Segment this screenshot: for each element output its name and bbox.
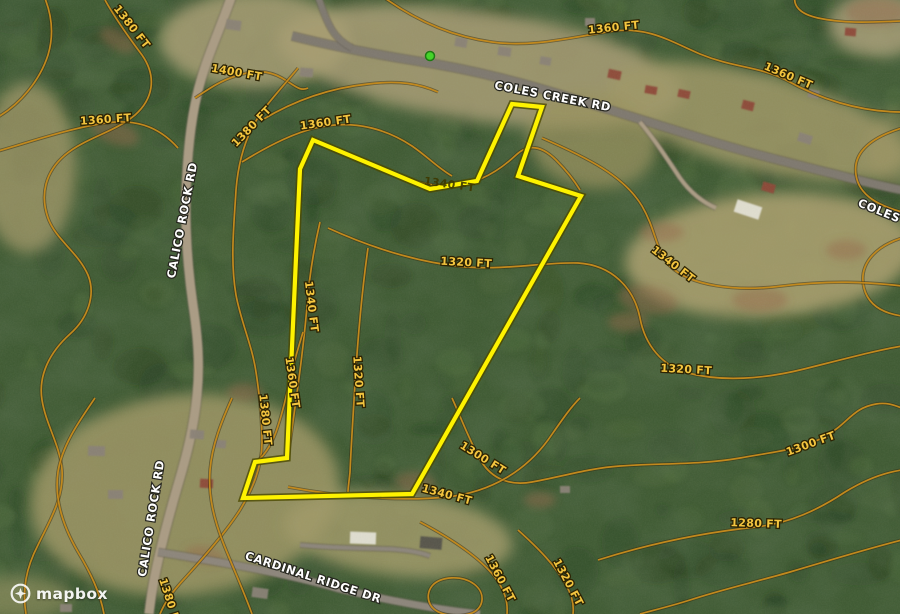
elevation-label: 1280 FT — [730, 516, 782, 531]
mapbox-wordmark: mapbox — [36, 585, 108, 603]
elevation-label: 1320 FT — [660, 362, 712, 378]
green-dot-marker[interactable] — [426, 52, 435, 61]
marker-layer — [426, 52, 435, 61]
mapbox-logo[interactable]: mapbox — [10, 583, 108, 604]
satellite-map: 1380 FT1400 FT1360 FT1380 FT1360 FT1360 … — [0, 0, 900, 614]
elevation-label: 1320 FT — [440, 255, 492, 271]
mapbox-icon — [10, 583, 31, 604]
map-canvas[interactable]: 1380 FT1400 FT1360 FT1380 FT1360 FT1360 … — [0, 0, 900, 614]
